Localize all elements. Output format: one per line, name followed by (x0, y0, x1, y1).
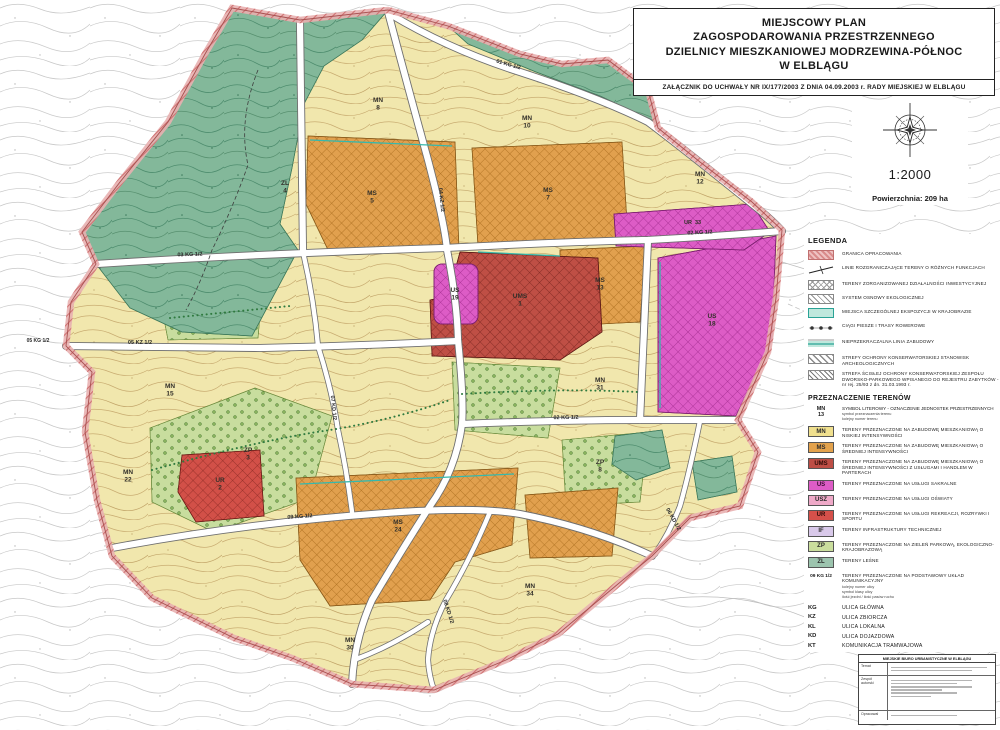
zoning-item-ms: MS TERENY PRZEZNACZONE NA ZABUDOWĘ MIESZ… (808, 442, 1000, 454)
zoning-item-usz: USZ TERENY PRZEZNACZONE NA USŁUGI OŚWIAT… (808, 495, 1000, 506)
strict-protection-swatch (808, 370, 834, 380)
stamp-table: MIEJSKIE BIURO URBANISTYCZNE W ELBLĄGU T… (858, 654, 996, 725)
road-classes: KG ULICA GŁÓWNA KZ ULICA ZBIORCZA KL ULI… (808, 605, 1000, 650)
svg-text:05 KG 1/2: 05 KG 1/2 (27, 338, 50, 344)
legend-item-archaeology: STREFY OCHRONY KONSERWATORSKIEJ STANOWIS… (808, 354, 1000, 366)
stamp-header: MIEJSKIE BIURO URBANISTYCZNE W ELBLĄGU (859, 655, 995, 663)
road-class-kl: KL ULICA LOKALNA (808, 624, 1000, 631)
symbol-note-sub1: symbol przeznaczenia terenu (842, 412, 994, 416)
symbol-note-number: 13 (808, 412, 834, 418)
legend-item-building-line: NIEPRZEKRACZALNA LINIA ZABUDOWY (808, 338, 1000, 350)
chip-us: US (808, 480, 834, 491)
symbol-note-sub2: kolejny numer terenu (842, 417, 994, 421)
stamp-row-authors: Zespół autorski (859, 676, 995, 711)
stamp-row-footer: Opracował (859, 711, 995, 720)
symbol-note: MN 13 SYMBOL LITEROWY - OZNACZENIE JEDNO… (808, 406, 1000, 422)
legend-item-strict-protection: STREFA ŚCISŁEJ OCHRONY KONSERWATORSKIEJ … (808, 370, 1000, 388)
archaeology-swatch (808, 354, 834, 364)
roads-note: 09 KG 1/2 TERENY PRZEZNACZONE NA PODSTAW… (808, 572, 1000, 599)
title-block: MIEJSCOWY PLAN ZAGOSPODAROWANIA PRZESTRZ… (633, 8, 995, 96)
road-class-kz: KZ ULICA ZBIORCZA (808, 614, 1000, 621)
zoning-heading: PRZEZNACZENIE TERENÓW (808, 395, 1000, 402)
title-line-1: MIEJSCOWY PLAN (634, 16, 994, 30)
zoning-item-mn: MN TERENY PRZEZNACZONE NA ZABUDOWĘ MIESZ… (808, 426, 1000, 438)
svg-text:02 KG 1/2: 02 KG 1/2 (553, 415, 578, 421)
chip-ums: UMS (808, 458, 834, 469)
zoning-item-zp: ZP TERENY PRZEZNACZONE NA ZIELEŃ PARKOWĄ… (808, 541, 1000, 553)
zoning-item-ur: UR TERENY PRZEZNACZONE NA USŁUGI REKREAC… (808, 510, 1000, 522)
legend-item-dividing-lines: LINIE ROZGRANICZAJĄCE TERENY O RÓŻNYCH F… (808, 264, 1000, 276)
svg-text:05 KZ 1/2: 05 KZ 1/2 (128, 340, 152, 346)
chip-if: IF (808, 526, 834, 537)
legend-panel: LEGENDA GRANICA OPRACOWANIA LINIE ROZGRA… (804, 234, 1000, 652)
legend-item-investment: TERENY ZORGANIZOWANEJ DZIAŁALNOŚCI INWES… (808, 280, 1000, 290)
attachment-note: ZAŁĄCZNIK DO UCHWAŁY NR IX/177/2003 Z DN… (634, 79, 994, 95)
legend-item-footpaths: CIĄGI PIESZE I TRASY ROWEROWE (808, 322, 1000, 334)
zoning-item-zl: ZL TERENY LEŚNE (808, 557, 1000, 568)
svg-text:03 KG 1/2: 03 KG 1/2 (177, 252, 202, 259)
title-line-3: DZIELNICY MIESZKANIOWEJ MODRZEWINA-PÓŁNO… (634, 45, 994, 59)
legend-item-exposition: MIEJSCA SZCZEGÓLNEJ EKSPOZYCJI W KRAJOBR… (808, 308, 1000, 318)
roads-note-label: TERENY PRZEZNACZONE NA PODSTAWOWY UKŁAD … (842, 572, 1000, 584)
compass-block: 1:2000 Powierzchnia: 209 ha (852, 100, 968, 205)
chip-ur: UR (808, 510, 834, 521)
area-value: Powierzchnia: 209 ha (852, 194, 968, 203)
legend-heading: LEGENDA (808, 236, 1000, 245)
road-class-kt: KT KOMUNIKACJA TRAMWAJOWA (808, 643, 1000, 650)
zoning-item-us: US TERENY PRZEZNACZONE NA USŁUGI SAKRALN… (808, 480, 1000, 491)
plan-sheet: 01 KG 1/2 03 KG 1/2 02 KG 1/2 04 KZ 1/2 … (0, 0, 1000, 730)
road-class-kg: KG ULICA GŁÓWNA (808, 605, 1000, 612)
road-class-kd: KD ULICA DOJAZDOWA (808, 633, 1000, 640)
symbol-note-label: SYMBOL LITEROWY - OZNACZENIE JEDNOSTEK P… (842, 406, 994, 412)
roads-note-symbol: 09 KG 1/2 (808, 572, 834, 579)
legend-item-boundary: GRANICA OPRACOWANIA (808, 250, 1000, 260)
zoning-item-if: IF TERENY INFRASTRUKTURY TECHNICZNEJ (808, 526, 1000, 537)
chip-zp: ZP (808, 541, 834, 552)
compass-rose-icon (882, 102, 938, 158)
chip-ms: MS (808, 442, 834, 453)
chip-mn: MN (808, 426, 834, 437)
exposition-swatch (808, 308, 834, 318)
legend-item-eco: SYSTEM OSNOWY EKOLOGICZNEJ (808, 294, 1000, 304)
boundary-swatch (808, 250, 834, 260)
chip-zl: ZL (808, 557, 834, 568)
title-line-2: ZAGOSPODAROWANIA PRZESTRZENNEGO (634, 30, 994, 44)
map-scale: 1:2000 (852, 167, 968, 182)
zoning-item-ums: UMS TERENY PRZEZNACZONE NA ZABUDOWĘ MIES… (808, 458, 1000, 476)
building-line-symbol (808, 338, 834, 350)
title-line-4: W ELBLĄGU (634, 59, 994, 73)
chip-usz: USZ (808, 495, 834, 506)
stamp-row-subject: Temat (859, 663, 995, 676)
eco-system-swatch (808, 294, 834, 304)
investment-swatch (808, 280, 834, 290)
footpath-dots-symbol (808, 322, 834, 334)
dividing-line-symbol (808, 264, 834, 276)
